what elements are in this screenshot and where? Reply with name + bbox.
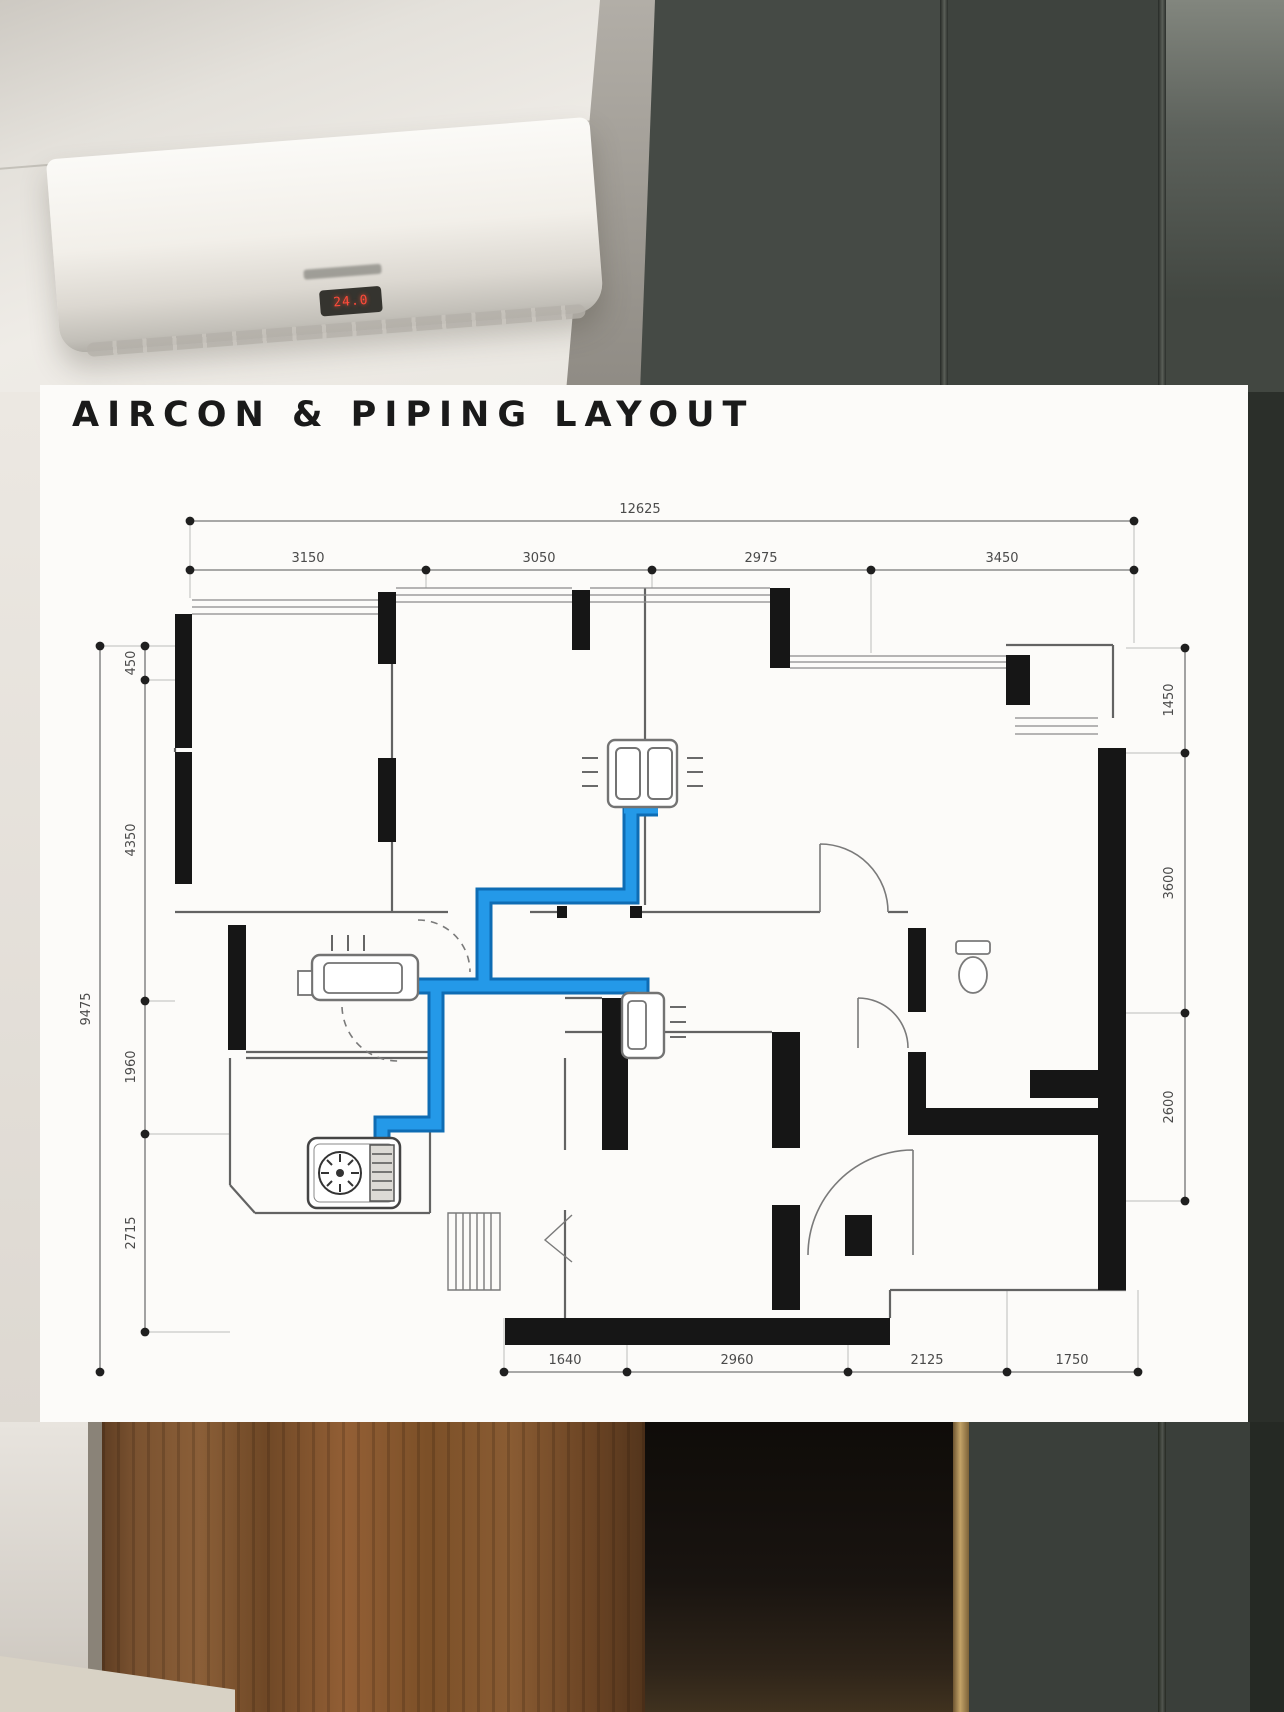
dim-left-2: 4350 [124, 823, 139, 856]
dim-left-1: 450 [124, 651, 139, 676]
floor-plan-svg: 12625 3150 3050 2975 3450 9475 450 4350 … [40, 385, 1248, 1422]
tick [1181, 749, 1190, 758]
wall-segment [845, 1215, 872, 1256]
dimension-lines [100, 521, 1185, 1372]
wall-segment [378, 758, 396, 842]
wardrobe-panel-dark [1250, 1422, 1284, 1712]
aircon-indoor-unit-3 [622, 993, 686, 1058]
wall-segment [572, 590, 590, 650]
wardrobe-panels-bottom [969, 1422, 1284, 1712]
wall-segment [1030, 1070, 1100, 1098]
wall-end-cap [557, 906, 567, 918]
wardrobe-panel [948, 0, 1158, 392]
door-arc [858, 998, 908, 1048]
chevron-mark [545, 1215, 572, 1262]
dim-bottom-1: 1640 [548, 1353, 581, 1368]
tick [1130, 566, 1139, 575]
aircon-indoor-unit-1 [582, 740, 703, 807]
wardrobe-seam [940, 0, 948, 392]
aircon-outdoor-unit [308, 1138, 400, 1208]
tick [623, 1368, 632, 1377]
stairs-hatch [448, 1213, 572, 1290]
wall-segment [1098, 748, 1126, 1290]
toilet-tank [956, 941, 990, 954]
aircon-temperature-display: 24.0 [319, 286, 383, 317]
door-arc-dashed [418, 920, 470, 972]
vent-ticks [332, 935, 364, 951]
wall-segment [175, 752, 192, 884]
tick [186, 566, 195, 575]
wall-aircon-photo: 24.0 [44, 87, 606, 367]
wardrobe-seam [1158, 0, 1166, 392]
tick [141, 997, 150, 1006]
tick [867, 566, 876, 575]
dim-bottom-3: 2125 [910, 1353, 943, 1368]
tick [96, 642, 105, 651]
unit-lip [298, 971, 312, 995]
tick [844, 1368, 853, 1377]
dim-bottom-2: 2960 [720, 1353, 753, 1368]
wall-segment [908, 928, 926, 1012]
toilet-fixture [956, 941, 990, 993]
wall-segment [378, 592, 396, 664]
hatch-lines [448, 1213, 500, 1290]
floor-plan-panel: AIRCON & PIPING LAYOUT [40, 385, 1248, 1422]
wall-segment [505, 1318, 890, 1345]
wardrobe-panel [1166, 0, 1284, 392]
dim-left-total: 9475 [79, 992, 94, 1025]
wall-segment [175, 614, 192, 748]
tick [1130, 517, 1139, 526]
wardrobe-panels-photo [600, 0, 1284, 392]
extension-line [100, 521, 1185, 1372]
wooden-door [102, 1422, 645, 1712]
wall-segment [772, 1032, 800, 1148]
dim-right-2: 3600 [1162, 866, 1177, 899]
tick [141, 1328, 150, 1337]
tick [1181, 644, 1190, 653]
tick [500, 1368, 509, 1377]
dim-right-1: 1450 [1162, 683, 1177, 716]
fan-hub [336, 1169, 344, 1177]
tick [648, 566, 657, 575]
brass-trim [953, 1422, 969, 1712]
wall-segment [1006, 655, 1030, 705]
wall-segment [772, 1205, 800, 1310]
wall-end-cap [630, 906, 642, 918]
tick [1003, 1368, 1012, 1377]
dim-bottom-4: 1750 [1055, 1353, 1088, 1368]
dim-top-4: 3450 [985, 551, 1018, 566]
toilet-bowl [959, 957, 987, 993]
door-frame [88, 1422, 102, 1712]
tick [141, 642, 150, 651]
dim-top-1: 3150 [291, 551, 324, 566]
dim-left-4: 2715 [124, 1216, 139, 1249]
dim-right-3: 2600 [1162, 1090, 1177, 1123]
dim-top-2: 3050 [522, 551, 555, 566]
wall-strip-left [0, 392, 40, 1424]
wall-segment [228, 925, 246, 1050]
aircon-indoor-unit-2 [298, 935, 418, 1000]
dark-doorway [645, 1422, 953, 1712]
tick [422, 566, 431, 575]
tick [186, 517, 195, 526]
wall-segment [908, 1108, 1098, 1135]
wardrobe-strip-right [1248, 392, 1284, 1424]
wall-segment [770, 588, 790, 668]
dim-top-total: 12625 [619, 502, 660, 517]
wardrobe-seam [1158, 1422, 1166, 1712]
tick [1181, 1009, 1190, 1018]
door-arc [820, 844, 888, 912]
tick [141, 1130, 150, 1139]
tick [141, 676, 150, 685]
tick [1134, 1368, 1143, 1377]
unit-body [608, 740, 677, 807]
aircon-body: 24.0 [46, 117, 605, 354]
tick [1181, 1197, 1190, 1206]
room-photo [0, 1422, 1284, 1712]
extension-lines [100, 521, 1185, 1372]
dim-left-3: 1960 [124, 1050, 139, 1083]
aircon-brand-logo [303, 264, 382, 280]
dim-top-3: 2975 [744, 551, 777, 566]
tick [96, 1368, 105, 1377]
